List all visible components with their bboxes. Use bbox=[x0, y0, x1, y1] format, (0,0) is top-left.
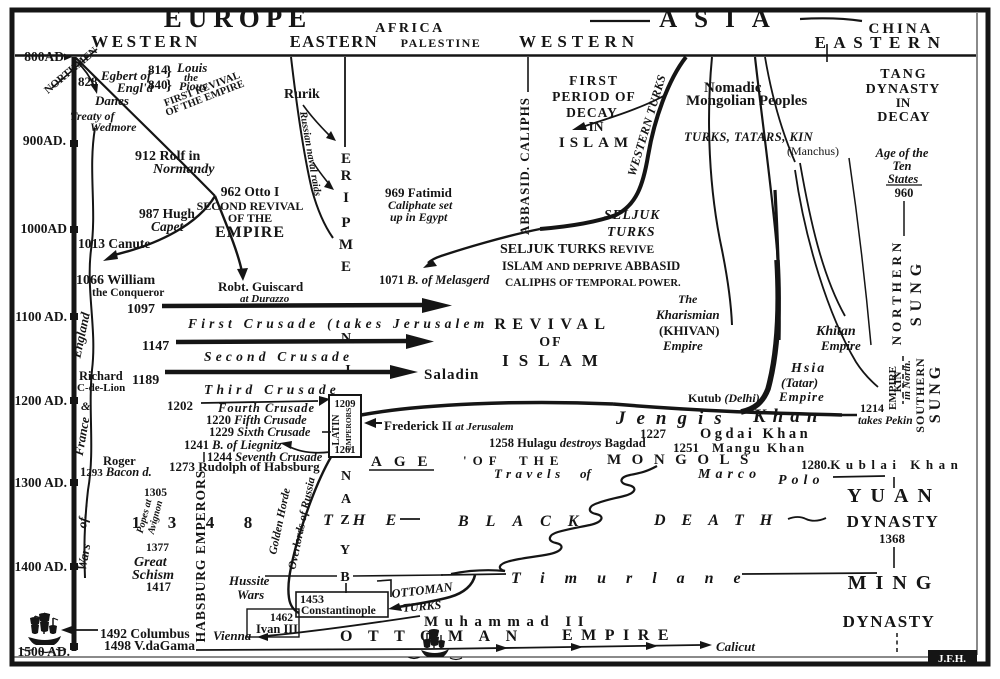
svg-text:Hsia: Hsia bbox=[790, 361, 826, 376]
svg-text:Second Crusade: Second Crusade bbox=[204, 349, 353, 364]
svg-text:of: of bbox=[580, 466, 593, 481]
svg-text:Empire: Empire bbox=[820, 338, 861, 353]
svg-text:Kutub (Delhi): Kutub (Delhi) bbox=[688, 391, 760, 405]
svg-text:SUNG: SUNG bbox=[908, 258, 925, 326]
svg-text:840: 840 bbox=[148, 77, 168, 92]
svg-text:ISLAM: ISLAM bbox=[559, 135, 633, 151]
svg-text:H: H bbox=[352, 512, 366, 529]
svg-text:1202: 1202 bbox=[167, 398, 193, 413]
svg-text:960: 960 bbox=[895, 186, 914, 200]
svg-text:B: B bbox=[340, 570, 349, 585]
svg-text:P: P bbox=[341, 215, 350, 231]
svg-text:Age of the: Age of the bbox=[875, 146, 929, 160]
svg-text:Empire: Empire bbox=[778, 389, 825, 404]
svg-text:Khitan: Khitan bbox=[815, 324, 856, 339]
svg-text:Normandy: Normandy bbox=[152, 162, 215, 177]
svg-text:1453: 1453 bbox=[300, 592, 324, 606]
svg-text:MONGOLS: MONGOLS bbox=[607, 452, 759, 468]
svg-text:3: 3 bbox=[168, 513, 177, 532]
svg-text:Golden Horde: Golden Horde bbox=[267, 487, 293, 555]
svg-text:E: E bbox=[341, 259, 351, 275]
svg-text:Constantinople: Constantinople bbox=[301, 605, 376, 617]
svg-text:of—: of— bbox=[74, 503, 93, 529]
svg-text:8: 8 bbox=[244, 513, 253, 532]
svg-text:Polo: Polo bbox=[778, 473, 824, 488]
svg-text:FIRST: FIRST bbox=[569, 73, 619, 88]
svg-text:First Crusade (takes Jerusa: First Crusade (takes Jerusalem bbox=[187, 316, 488, 331]
svg-text:1280.Kublai Khan: 1280.Kublai Khan bbox=[801, 457, 963, 472]
svg-text:LATIN: LATIN bbox=[331, 414, 342, 446]
svg-text:C-de-Lion: C-de-Lion bbox=[77, 382, 125, 394]
svg-text:Empire: Empire bbox=[662, 338, 703, 353]
svg-text:REVIVAL: REVIVAL bbox=[494, 316, 611, 333]
svg-text:NORTHERN: NORTHERN bbox=[889, 239, 904, 346]
svg-text:WESTERN: WESTERN bbox=[519, 32, 639, 51]
svg-text:DEATH: DEATH bbox=[653, 512, 788, 529]
svg-text:1293 Bacon d.: 1293 Bacon d. bbox=[80, 465, 152, 479]
svg-text:800AD: 800AD bbox=[24, 49, 64, 64]
svg-text:Timurlane: Timurlane bbox=[511, 570, 761, 587]
svg-text:TURKS, TATARS, KIN: TURKS, TATARS, KIN bbox=[684, 130, 814, 144]
svg-text:1200 AD.: 1200 AD. bbox=[14, 393, 67, 408]
svg-text:N: N bbox=[341, 469, 351, 484]
svg-text:TANG: TANG bbox=[880, 67, 927, 82]
svg-text:J.F.H.: J.F.H. bbox=[938, 653, 966, 665]
svg-text:EUROPE: EUROPE bbox=[164, 3, 313, 33]
svg-text:1300 AD.: 1300 AD. bbox=[14, 475, 67, 490]
svg-text:1400 AD.: 1400 AD. bbox=[14, 559, 67, 574]
svg-text:Rurik: Rurik bbox=[284, 87, 320, 102]
svg-text:Wars: Wars bbox=[237, 587, 264, 602]
svg-text:SUNG: SUNG bbox=[927, 363, 944, 423]
svg-text:EMPIRE: EMPIRE bbox=[562, 627, 677, 644]
svg-text:EMPIRE: EMPIRE bbox=[887, 366, 899, 410]
svg-text:Z: Z bbox=[340, 513, 349, 528]
svg-text:1214: 1214 bbox=[860, 401, 884, 415]
svg-text:1071 B. of Melasgerd: 1071 B. of Melasgerd bbox=[379, 273, 490, 287]
svg-text:1000AD: 1000AD bbox=[21, 221, 68, 236]
svg-text:N: N bbox=[341, 331, 351, 346]
svg-text:Saladin: Saladin bbox=[424, 367, 479, 383]
svg-text:Robt. Guiscard: Robt. Guiscard bbox=[218, 279, 304, 294]
svg-text:Third Crusade: Third Crusade bbox=[204, 382, 340, 397]
svg-text:at Durazzo: at Durazzo bbox=[240, 293, 290, 305]
svg-text:TURKS: TURKS bbox=[402, 598, 442, 615]
svg-text:Russian naval raids: Russian naval raids bbox=[297, 110, 323, 197]
svg-text:R: R bbox=[341, 168, 352, 184]
svg-text:WESTERN: WESTERN bbox=[91, 32, 201, 51]
svg-text:SOUTHERN: SOUTHERN bbox=[913, 357, 927, 432]
svg-text:ABBASID. CALIPHS: ABBASID. CALIPHS bbox=[517, 97, 532, 235]
svg-text:Vienna: Vienna bbox=[213, 628, 252, 643]
svg-text:CALIPHS OF TEMPORAL POWER.: CALIPHS OF TEMPORAL POWER. bbox=[505, 277, 681, 289]
svg-text:HABSBURG EMPERORS: HABSBURG EMPERORS bbox=[193, 470, 208, 643]
svg-text:PERIOD OF: PERIOD OF bbox=[552, 89, 636, 104]
svg-text:1066 William: 1066 William bbox=[76, 273, 156, 288]
svg-text:States: States bbox=[888, 172, 919, 186]
svg-text:Calicut: Calicut bbox=[716, 639, 755, 654]
svg-text:PALESTINE: PALESTINE bbox=[401, 36, 482, 50]
svg-text:&: & bbox=[81, 399, 91, 413]
svg-text:Wars: Wars bbox=[74, 543, 93, 572]
svg-text:1189: 1189 bbox=[132, 373, 159, 388]
svg-text:1500 AD.: 1500 AD. bbox=[17, 644, 70, 659]
svg-text:in North.: in North. bbox=[902, 360, 913, 400]
svg-text:814: 814 bbox=[148, 62, 168, 77]
svg-text:T: T bbox=[323, 512, 334, 529]
svg-text:1258 Hulagu destroys Bagdad: 1258 Hulagu destroys Bagdad bbox=[489, 436, 646, 450]
svg-text:SELJUK: SELJUK bbox=[604, 207, 660, 222]
svg-text:1377: 1377 bbox=[146, 542, 169, 554]
svg-text:DYNASTY: DYNASTY bbox=[847, 512, 940, 531]
svg-text:1305: 1305 bbox=[144, 487, 167, 499]
svg-text:(Manchus): (Manchus) bbox=[787, 144, 839, 158]
svg-text:Hussite: Hussite bbox=[228, 573, 270, 588]
svg-text:AFRICA: AFRICA bbox=[375, 21, 444, 36]
svg-text:E: E bbox=[385, 512, 397, 529]
svg-text:}: } bbox=[166, 78, 172, 94]
svg-text:1417: 1417 bbox=[146, 580, 171, 594]
svg-text:1097: 1097 bbox=[127, 302, 155, 317]
svg-text:TURKS: TURKS bbox=[607, 224, 656, 239]
svg-text:the Conqueror: the Conqueror bbox=[92, 287, 164, 299]
svg-text:ISLAM AND DEPRIVE ABBASID: ISLAM AND DEPRIVE ABBASID bbox=[502, 259, 680, 273]
svg-text:The: The bbox=[678, 292, 698, 306]
svg-text:I: I bbox=[343, 190, 349, 206]
svg-text:Capet: Capet bbox=[151, 219, 184, 234]
svg-text:OF: OF bbox=[539, 335, 562, 350]
svg-text:takes Pekin: takes Pekin bbox=[858, 415, 913, 427]
svg-text:OF THE: OF THE bbox=[228, 211, 272, 225]
svg-text:1229 Sixth Crusade: 1229 Sixth Crusade bbox=[209, 425, 311, 439]
svg-text:Ten: Ten bbox=[893, 159, 912, 173]
svg-text:900AD.: 900AD. bbox=[23, 133, 66, 148]
svg-text:YUAN: YUAN bbox=[847, 485, 941, 507]
svg-text:Marco: Marco bbox=[697, 467, 761, 482]
svg-text:A: A bbox=[341, 492, 352, 507]
svg-text:EMPIRE: EMPIRE bbox=[215, 224, 285, 241]
svg-text:Mongolian Peoples: Mongolian Peoples bbox=[686, 93, 807, 109]
svg-text:EMPERORS: EMPERORS bbox=[344, 408, 353, 451]
svg-text:EASTERN: EASTERN bbox=[290, 32, 378, 51]
svg-text:1147: 1147 bbox=[142, 339, 169, 354]
svg-text:1013 Canute: 1013 Canute bbox=[78, 236, 150, 251]
svg-text:Khan: Khan bbox=[752, 406, 824, 427]
svg-text:(Tatar): (Tatar) bbox=[781, 375, 818, 390]
svg-text:SELJUK TURKS REVIVE: SELJUK TURKS REVIVE bbox=[500, 242, 655, 257]
svg-text:up in Egypt: up in Egypt bbox=[390, 210, 448, 224]
svg-text:IN: IN bbox=[896, 95, 911, 110]
svg-text:EASTERN: EASTERN bbox=[815, 33, 948, 52]
svg-text:1273 Rudolph of Habsburg: 1273 Rudolph of Habsburg bbox=[169, 459, 320, 474]
svg-text:ASIA: ASIA bbox=[659, 6, 787, 33]
svg-text:DECAY: DECAY bbox=[877, 110, 931, 125]
svg-text:1: 1 bbox=[132, 513, 141, 532]
svg-text:E: E bbox=[341, 151, 351, 167]
svg-text:1100 AD.: 1100 AD. bbox=[15, 309, 67, 324]
svg-text:1368: 1368 bbox=[879, 531, 906, 546]
svg-text:Kharismian: Kharismian bbox=[655, 307, 720, 322]
svg-text:Y: Y bbox=[340, 543, 350, 558]
svg-text:Richard: Richard bbox=[79, 369, 123, 383]
svg-text:1498 V.daGama: 1498 V.daGama bbox=[104, 638, 195, 653]
svg-text:DYNASTY: DYNASTY bbox=[843, 612, 936, 631]
svg-text:(KHIVAN): (KHIVAN) bbox=[659, 323, 719, 338]
svg-text:MING: MING bbox=[848, 572, 941, 594]
svg-text:ISLAM: ISLAM bbox=[502, 351, 608, 370]
svg-text:Frederick II at Jerusalem: Frederick II at Jerusalem bbox=[384, 418, 514, 433]
svg-text:Wedmore: Wedmore bbox=[90, 120, 137, 134]
svg-text:962 Otto I: 962 Otto I bbox=[221, 184, 280, 199]
svg-text:AGE: AGE bbox=[371, 454, 440, 470]
svg-text:Travels: Travels bbox=[494, 466, 565, 481]
svg-text:M: M bbox=[339, 237, 353, 253]
